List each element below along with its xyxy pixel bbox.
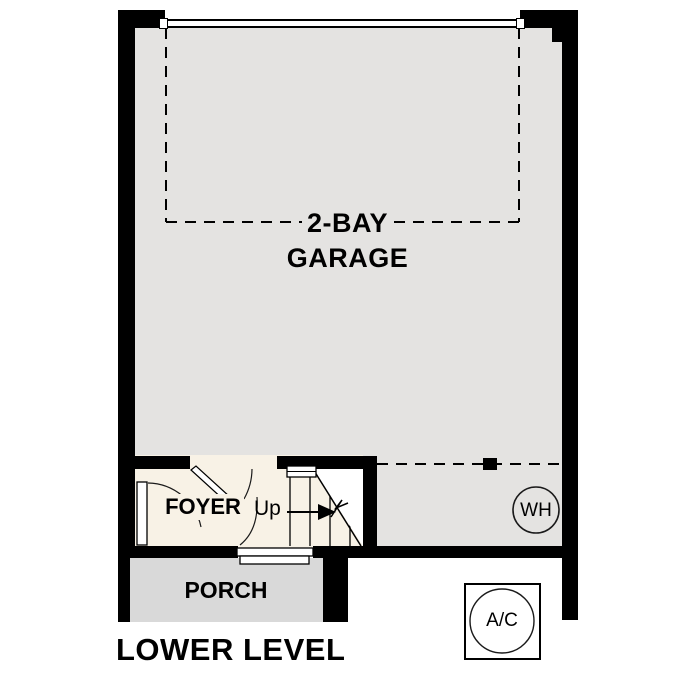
up-label: Up	[254, 497, 281, 521]
porch-pillar-right	[323, 548, 348, 622]
ac-label: A/C	[480, 610, 524, 632]
garage-door-jamb-left	[159, 18, 168, 29]
plan-title: LOWER LEVEL	[116, 632, 345, 668]
porch-pillar-left	[118, 546, 130, 622]
wall-right	[562, 10, 578, 620]
wall-foyer-top-right	[277, 456, 377, 469]
garage-label-line2: GARAGE	[282, 241, 414, 276]
garage-label-line1: 2-BAY	[302, 206, 393, 241]
porch-label: PORCH	[156, 577, 296, 604]
wall-left	[118, 10, 135, 558]
foyer-label: FOYER	[156, 494, 250, 520]
wall-right-notch	[552, 26, 562, 42]
wall-foyer-top-left	[118, 456, 190, 469]
wall-stairs-right	[363, 456, 377, 546]
garage-door-jamb-right	[516, 18, 525, 29]
entry-threshold-step-1	[237, 548, 313, 556]
wh-label: WH	[514, 500, 558, 522]
garage-label: 2-BAY GARAGE	[240, 206, 455, 276]
wall-bottom-right	[363, 546, 578, 558]
wall-bottom-left	[118, 546, 238, 558]
floor-plan-canvas: 2-BAY GARAGE FOYER Up WH PORCH A/C LOWER…	[0, 0, 687, 687]
garage-door	[164, 19, 521, 28]
